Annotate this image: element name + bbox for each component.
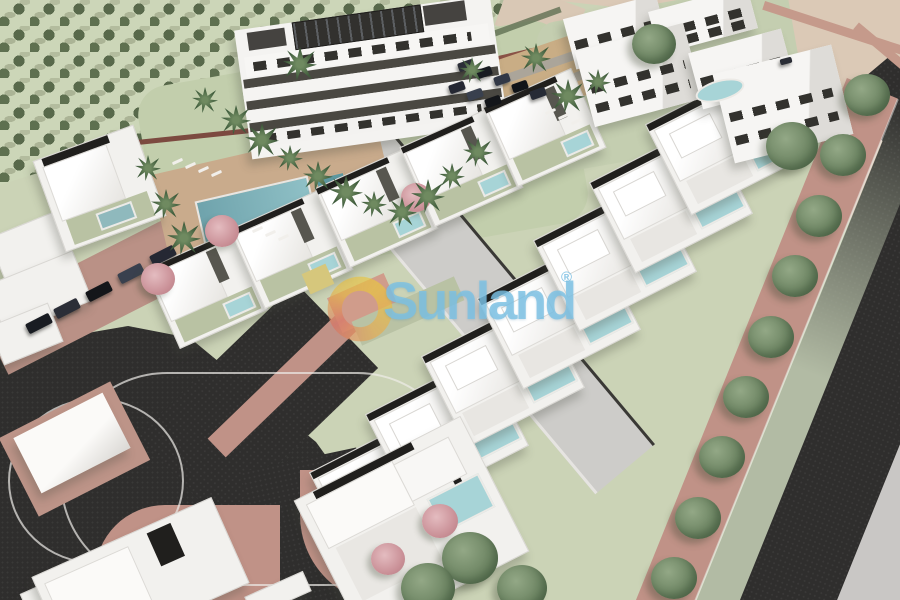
doorway — [147, 523, 185, 566]
street-tree — [497, 565, 547, 600]
flowering-tree — [371, 543, 405, 575]
street-tree — [820, 134, 866, 176]
watermark-brand: Sunland — [383, 275, 575, 328]
street-tree — [796, 195, 842, 237]
flowering-tree — [205, 215, 239, 247]
roof-structure — [247, 28, 287, 51]
street-tree — [766, 122, 818, 170]
street-tree — [675, 497, 721, 539]
registered-mark: ® — [561, 269, 572, 286]
street-tree — [748, 316, 794, 358]
street-tree — [651, 557, 697, 599]
street-tree — [723, 376, 769, 418]
street-tree — [844, 74, 890, 116]
roof-structure — [423, 0, 467, 26]
flowering-tree — [141, 263, 175, 295]
watermark-brand-text: Sunland — [383, 272, 575, 331]
street-tree — [699, 436, 745, 478]
flowering-tree — [422, 504, 458, 538]
aerial-render: Sunland ® — [0, 0, 900, 600]
street-tree — [772, 255, 818, 297]
